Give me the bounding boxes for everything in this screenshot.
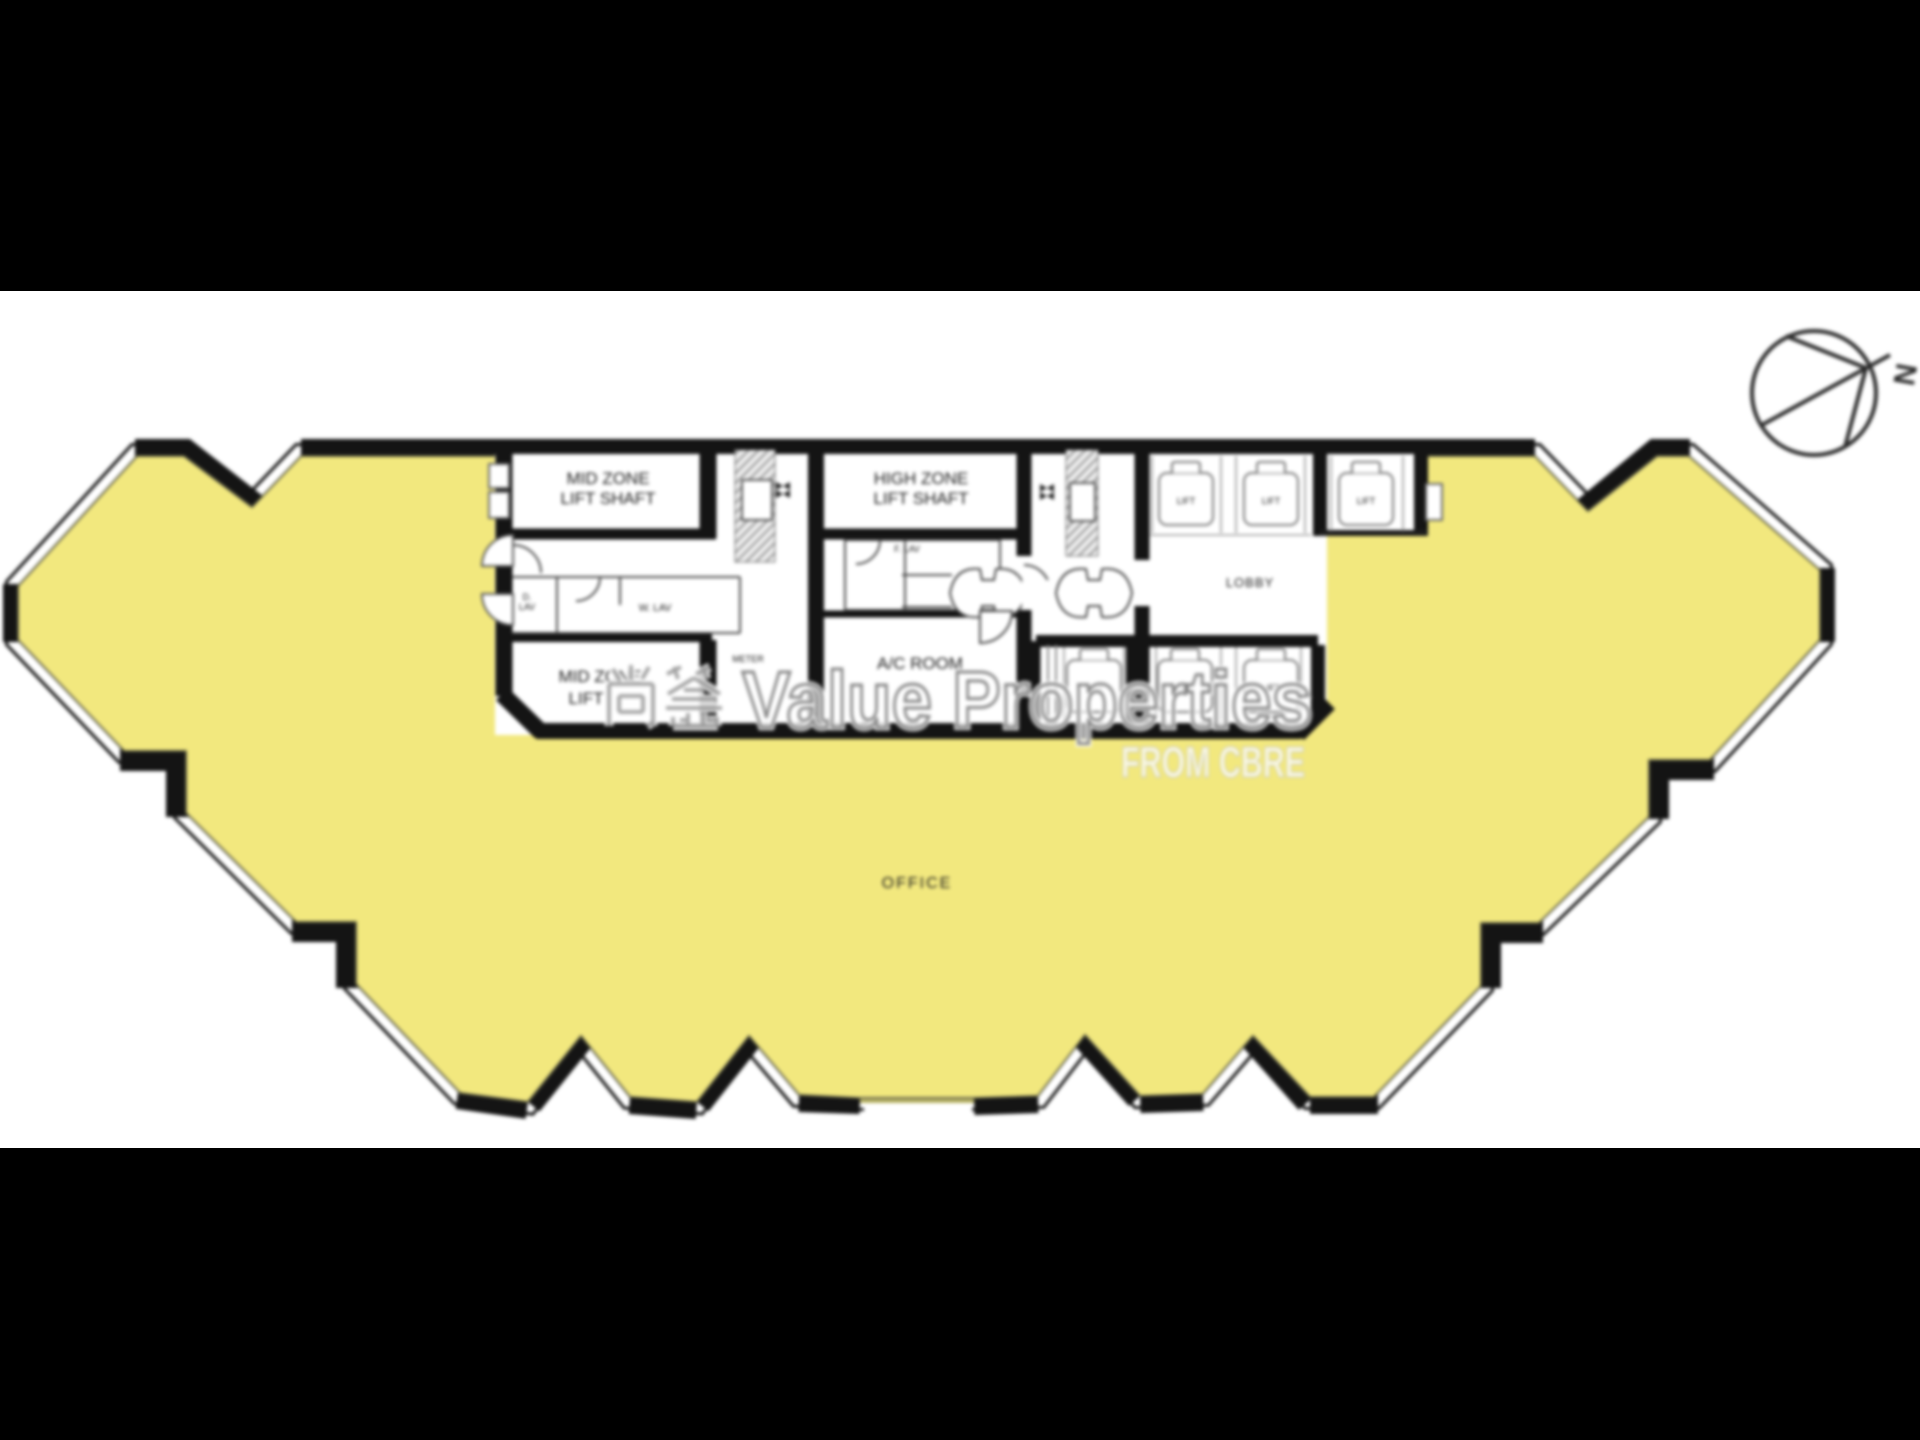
svg-text:LAV: LAV	[519, 602, 535, 612]
svg-text:FROM CBRE: FROM CBRE	[1121, 738, 1305, 787]
svg-text:OFFICE: OFFICE	[882, 875, 953, 892]
svg-text:Value Properties: Value Properties	[742, 655, 1312, 744]
svg-text:LIFT: LIFT	[1177, 496, 1196, 506]
svg-text:LIFT: LIFT	[1262, 496, 1281, 506]
svg-text:LIFT: LIFT	[1357, 496, 1376, 506]
svg-text:D.: D.	[523, 592, 532, 602]
svg-text:HIGH ZONE: HIGH ZONE	[874, 469, 968, 488]
svg-text:LIFT: LIFT	[569, 689, 604, 708]
svg-text:MID ZONE: MID ZONE	[566, 469, 649, 488]
svg-text:W. LAV: W. LAV	[639, 603, 672, 614]
svg-text:F. LAV: F. LAV	[894, 544, 920, 554]
svg-text:LIFT SHAFT: LIFT SHAFT	[560, 489, 655, 508]
svg-text:LOBBY: LOBBY	[1226, 575, 1274, 590]
svg-text:LIFT SHAFT: LIFT SHAFT	[873, 489, 968, 508]
